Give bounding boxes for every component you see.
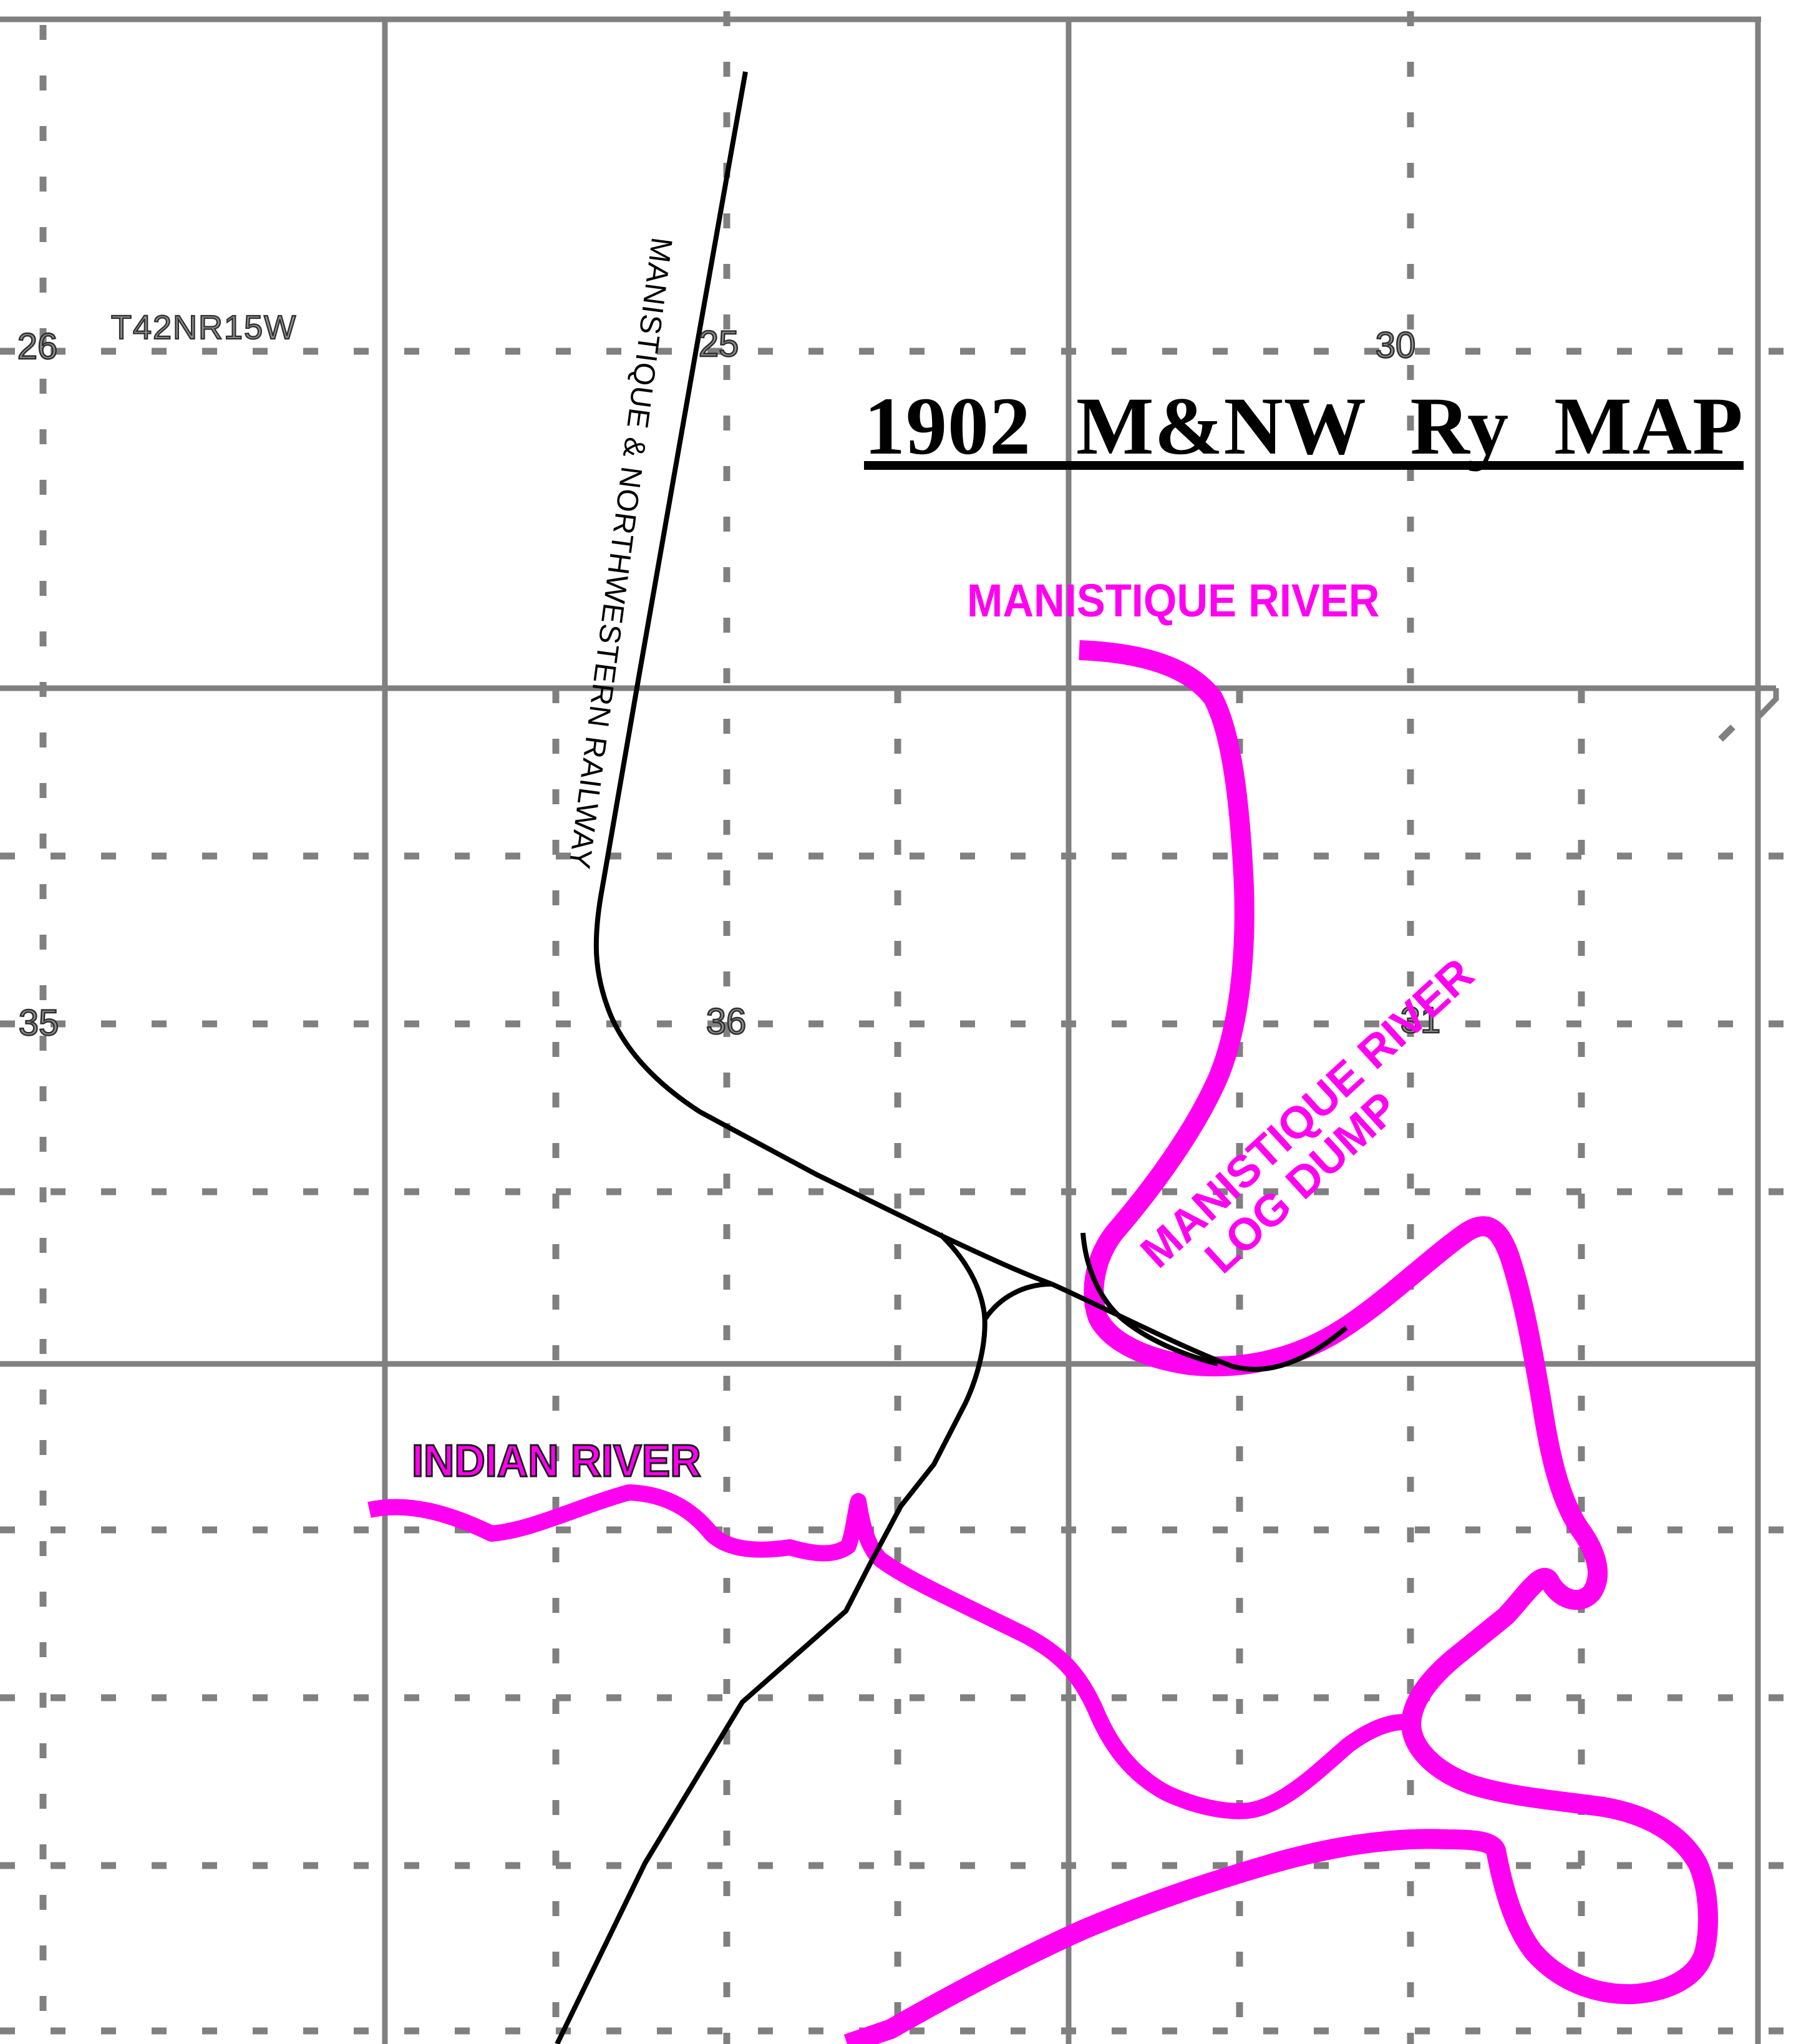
stray-tick-mark [1718,724,1735,742]
indian-river-label: INDIAN RIVER [412,1439,701,1484]
section-number-36: 36 [706,1004,747,1040]
manistique-river-label: MANISTIQUE RIVER [967,578,1379,624]
railway-south-leg [557,1234,985,2044]
railway-wye-connector [985,1284,1052,1319]
map-title: 1902 M&NW Ry MAP [864,392,1744,470]
section-number-26: 26 [17,329,58,365]
gridline-end-hook [1759,688,1776,716]
map-page: 26 25 30 35 36 31 T42NR15W 1902 M&NW Ry … [0,0,1796,2044]
section-number-30: 30 [1376,328,1416,364]
township-range-label: T42NR15W [111,311,297,344]
indian-river [369,1492,1411,1811]
section-number-35: 35 [19,1005,59,1041]
section-number-25: 25 [699,326,739,363]
map-canvas [0,0,1796,2044]
